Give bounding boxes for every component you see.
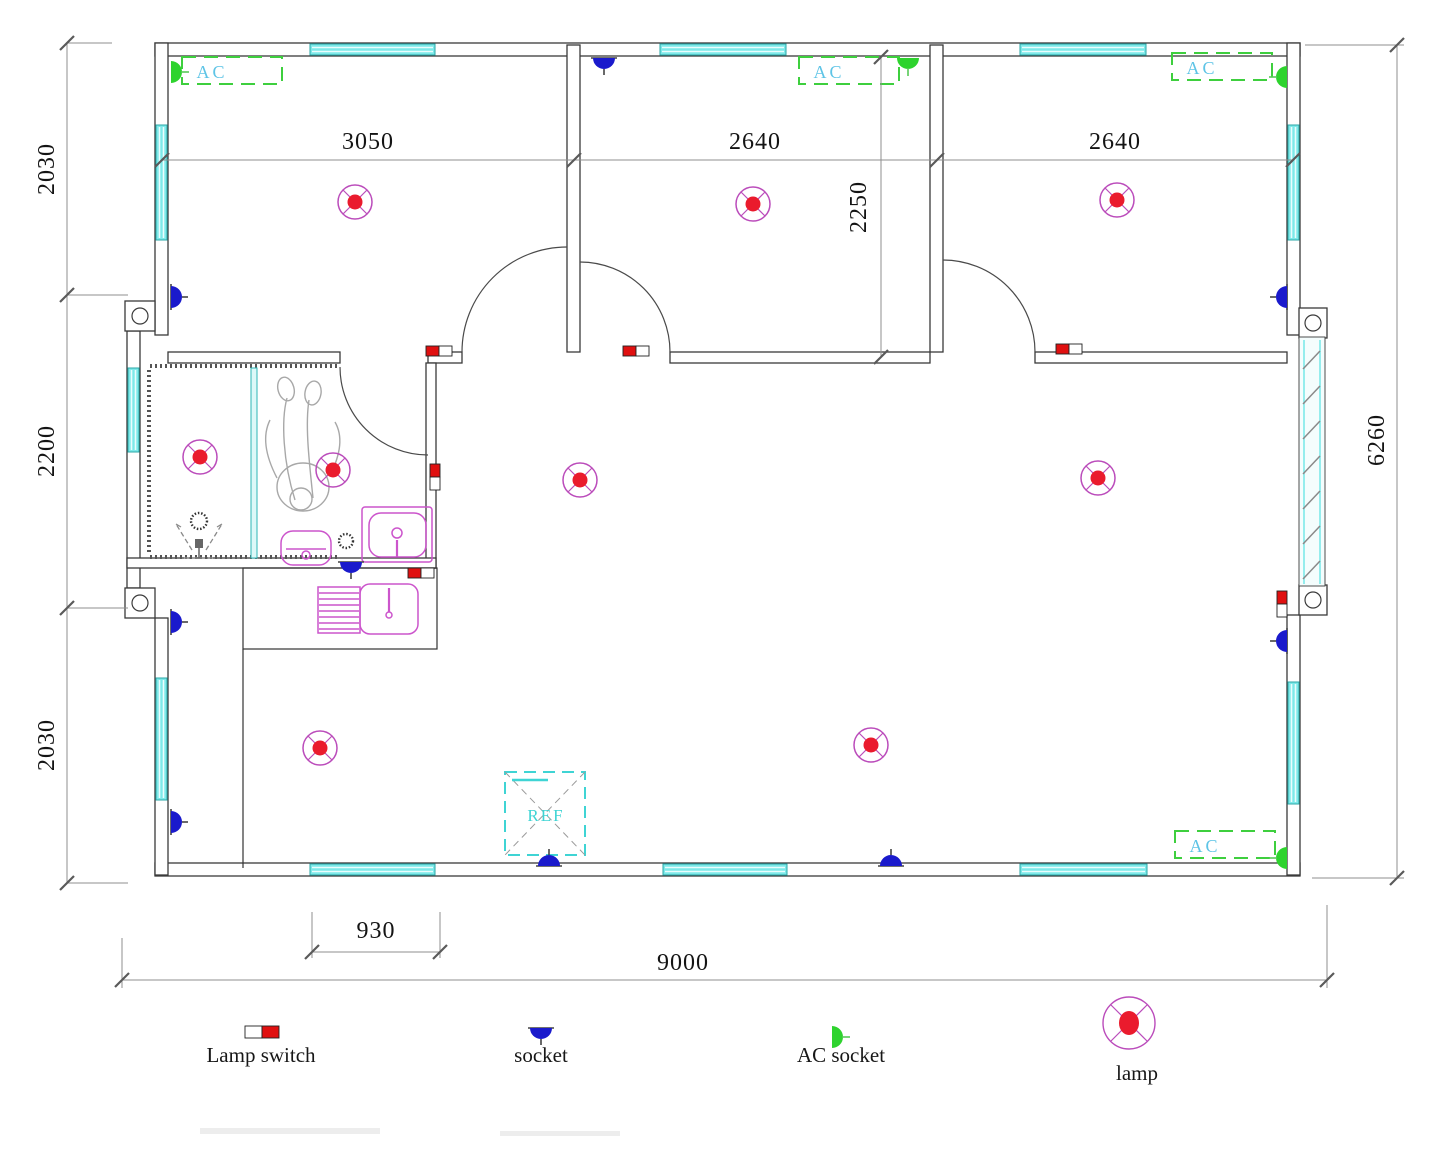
ac-units: AC AC AC AC bbox=[182, 53, 1275, 858]
lamp-icon bbox=[736, 187, 770, 221]
exhaust-fan-icon bbox=[339, 534, 353, 548]
legend: Lamp switch socket AC socket lamp bbox=[206, 997, 1158, 1085]
ac-unit: AC bbox=[1175, 831, 1275, 858]
scan-artifact bbox=[500, 1131, 620, 1136]
lamp-switches bbox=[408, 344, 1287, 617]
legend-label-ac-socket: AC socket bbox=[797, 1043, 885, 1067]
dim-right-height: 6260 bbox=[1364, 414, 1390, 466]
window bbox=[310, 864, 435, 875]
kitchen-sink bbox=[318, 584, 418, 634]
svg-text:AC: AC bbox=[1186, 58, 1217, 78]
sockets bbox=[171, 58, 1287, 866]
socket-icon bbox=[171, 809, 188, 835]
dim-left-bottom: 2030 bbox=[34, 719, 60, 771]
room1-door-arc bbox=[462, 247, 567, 352]
socket-icon bbox=[1270, 628, 1287, 654]
dim-left-middle: 2200 bbox=[34, 425, 60, 477]
dim-room2-depth: 2250 bbox=[846, 181, 872, 233]
legend-label-socket: socket bbox=[514, 1043, 568, 1067]
lamp-switch-icon bbox=[408, 568, 434, 578]
window bbox=[156, 125, 167, 240]
walls bbox=[125, 43, 1327, 876]
socket-icon bbox=[1270, 284, 1287, 310]
lamp-icon bbox=[303, 731, 337, 765]
lamp-switch-icon bbox=[430, 464, 440, 490]
lamp-icon bbox=[563, 463, 597, 497]
dim-room3-width: 2640 bbox=[1089, 129, 1141, 155]
lamp-switch-icon bbox=[245, 1026, 279, 1038]
floor-plan-page: REF AC AC AC AC bbox=[0, 0, 1445, 1156]
ac-sockets bbox=[171, 58, 1287, 869]
socket-icon bbox=[171, 609, 188, 635]
socket-icon bbox=[338, 562, 364, 579]
window bbox=[1288, 125, 1299, 240]
window bbox=[156, 678, 167, 800]
window bbox=[128, 368, 139, 452]
socket-icon bbox=[591, 58, 617, 75]
glass-panel bbox=[1299, 337, 1325, 586]
socket-icon bbox=[878, 849, 904, 866]
lamp-icon bbox=[1081, 461, 1115, 495]
lamp-switch-icon bbox=[1277, 591, 1287, 617]
ac-socket-icon bbox=[897, 58, 919, 76]
window bbox=[1020, 864, 1147, 875]
lamp-icon bbox=[1103, 997, 1155, 1049]
svg-text:AC: AC bbox=[813, 62, 844, 82]
dim-room2-width: 2640 bbox=[729, 129, 781, 155]
legend-label-lamp: lamp bbox=[1116, 1061, 1158, 1085]
ac-unit: AC bbox=[799, 57, 899, 84]
lamp-icon bbox=[1100, 183, 1134, 217]
floor-plan-canvas: REF AC AC AC AC bbox=[0, 0, 1445, 1156]
washbasin bbox=[362, 507, 432, 562]
window bbox=[1288, 682, 1299, 804]
window bbox=[663, 864, 787, 875]
ac-unit: AC bbox=[1172, 53, 1272, 80]
ref-box: REF bbox=[505, 772, 585, 855]
dim-left-top: 2030 bbox=[34, 143, 60, 195]
shower-glass-partition bbox=[251, 368, 257, 558]
window bbox=[310, 44, 435, 55]
dim-room1-width: 3050 bbox=[342, 129, 394, 155]
kitchen bbox=[243, 568, 437, 868]
svg-text:AC: AC bbox=[1189, 836, 1220, 856]
socket-icon bbox=[536, 849, 562, 866]
ac-unit: AC bbox=[182, 57, 282, 84]
room3-door-arc bbox=[943, 260, 1035, 352]
lamp-switch-icon bbox=[426, 346, 452, 356]
lamp-icon bbox=[338, 185, 372, 219]
shower-head bbox=[176, 513, 222, 558]
lamp-icon bbox=[183, 440, 217, 474]
lamp-switch-icon bbox=[1056, 344, 1082, 354]
window bbox=[660, 44, 786, 55]
ref-label: REF bbox=[527, 806, 564, 825]
scan-artifact bbox=[200, 1128, 380, 1134]
legend-label-lamp-switch: Lamp switch bbox=[206, 1043, 316, 1067]
window bbox=[1020, 44, 1146, 55]
person-figure bbox=[266, 375, 340, 511]
dim-bottom-total: 9000 bbox=[657, 950, 709, 976]
bathroom-door-arc bbox=[340, 367, 428, 455]
kitchen-counter bbox=[243, 568, 437, 649]
dim-bottom-small: 930 bbox=[357, 918, 396, 944]
socket-icon bbox=[171, 284, 188, 310]
svg-text:AC: AC bbox=[196, 62, 227, 82]
lamp-switch-icon bbox=[623, 346, 649, 356]
lamp-icon bbox=[854, 728, 888, 762]
ac-socket-icon bbox=[171, 61, 189, 83]
room2-door-arc bbox=[580, 262, 670, 352]
